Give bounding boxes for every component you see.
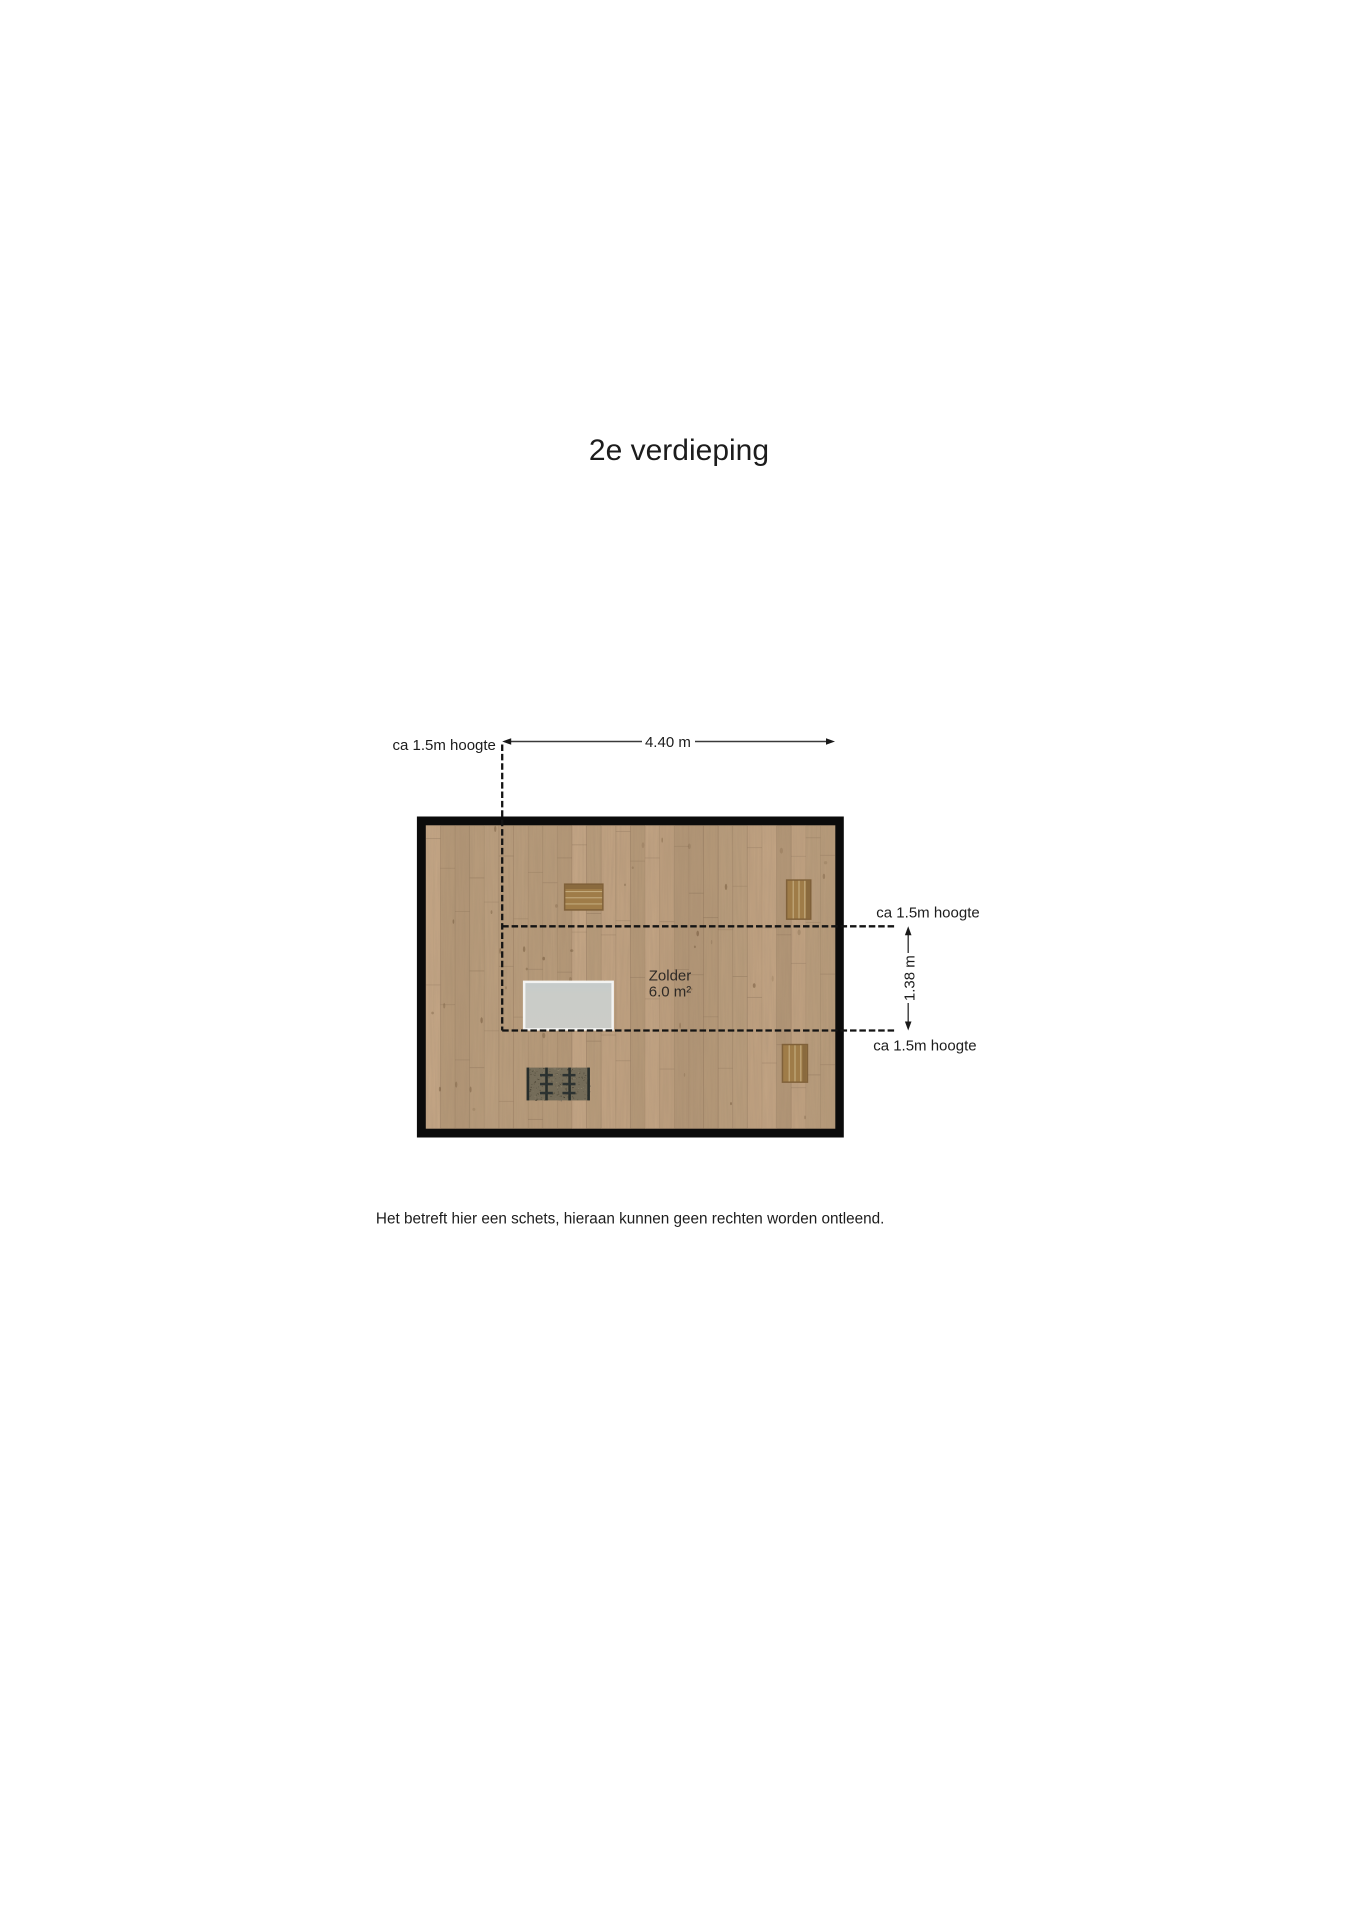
svg-text:1.38 m: 1.38 m — [901, 955, 918, 1001]
svg-text:Zolder: Zolder — [649, 968, 692, 985]
svg-text:ca 1.5m hoogte: ca 1.5m hoogte — [393, 737, 496, 754]
svg-text:4.40 m: 4.40 m — [645, 734, 691, 751]
svg-text:ca 1.5m hoogte: ca 1.5m hoogte — [876, 905, 979, 922]
svg-text:2e verdieping: 2e verdieping — [589, 434, 769, 467]
svg-text:6.0 m²: 6.0 m² — [649, 984, 692, 1001]
svg-text:Het betreft hier een schets, h: Het betreft hier een schets, hieraan kun… — [376, 1211, 885, 1228]
svg-text:ca 1.5m hoogte: ca 1.5m hoogte — [873, 1038, 976, 1055]
